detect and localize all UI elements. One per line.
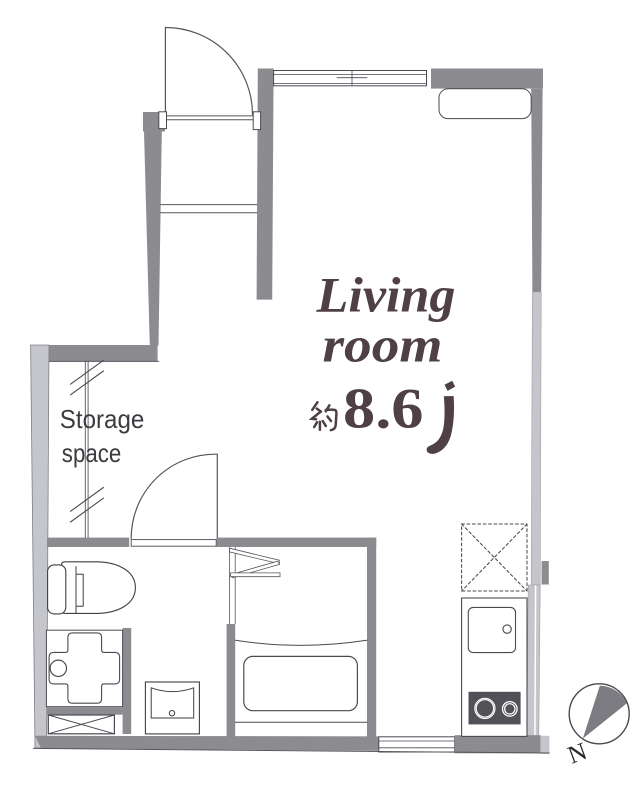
svg-text:room: room	[323, 317, 443, 373]
svg-text:8.6: 8.6	[343, 378, 424, 441]
svg-text:Storage: Storage	[60, 404, 145, 434]
svg-text:N: N	[564, 738, 590, 770]
svg-text:Living: Living	[315, 267, 455, 323]
svg-text:space: space	[62, 438, 122, 468]
